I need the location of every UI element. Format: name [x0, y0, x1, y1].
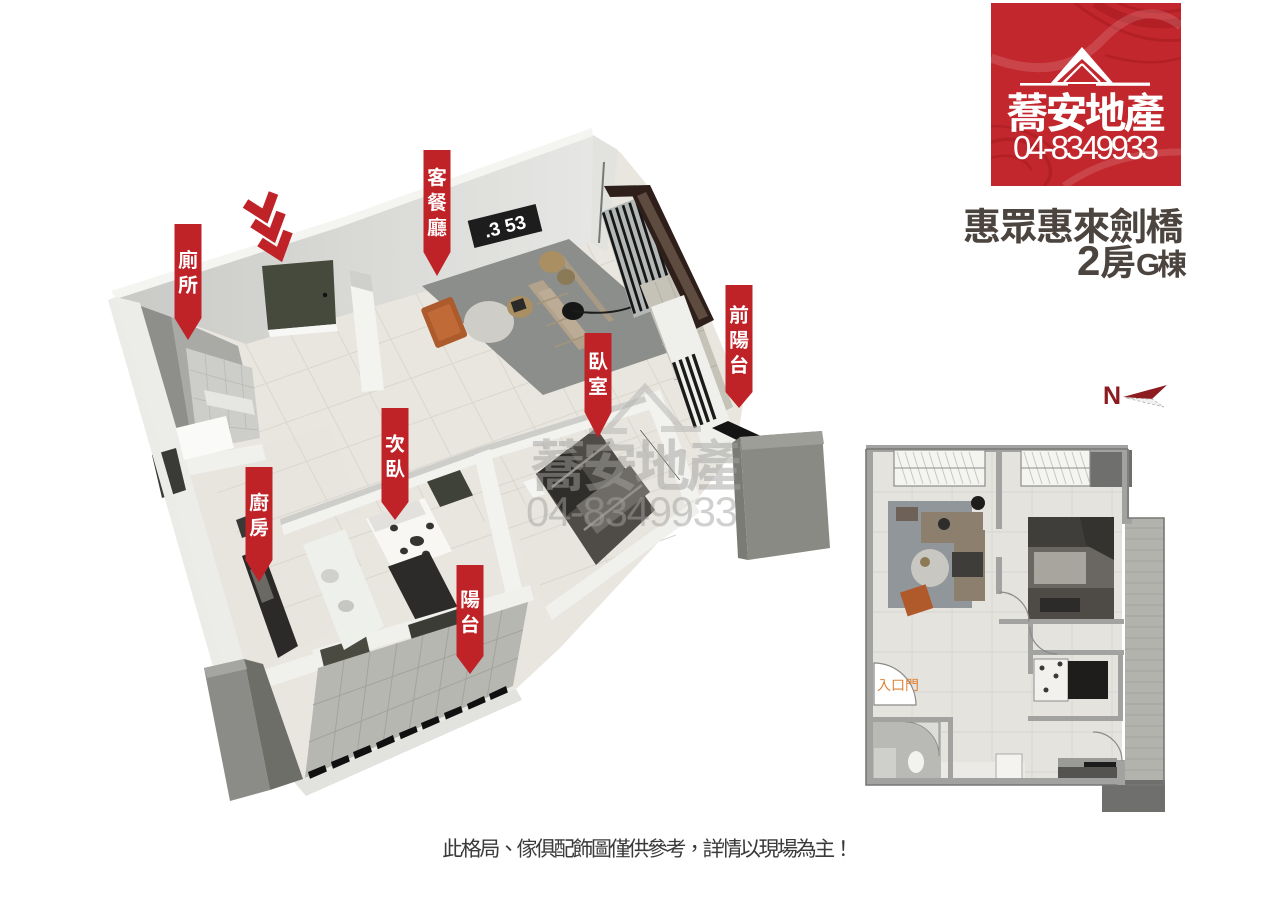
svg-text:G: G — [1136, 247, 1160, 282]
svg-text:2: 2 — [1077, 237, 1100, 284]
svg-text:04-8349933: 04-8349933 — [526, 488, 738, 535]
svg-text:04-8349933: 04-8349933 — [1013, 129, 1159, 166]
svg-text:N: N — [1103, 382, 1121, 410]
